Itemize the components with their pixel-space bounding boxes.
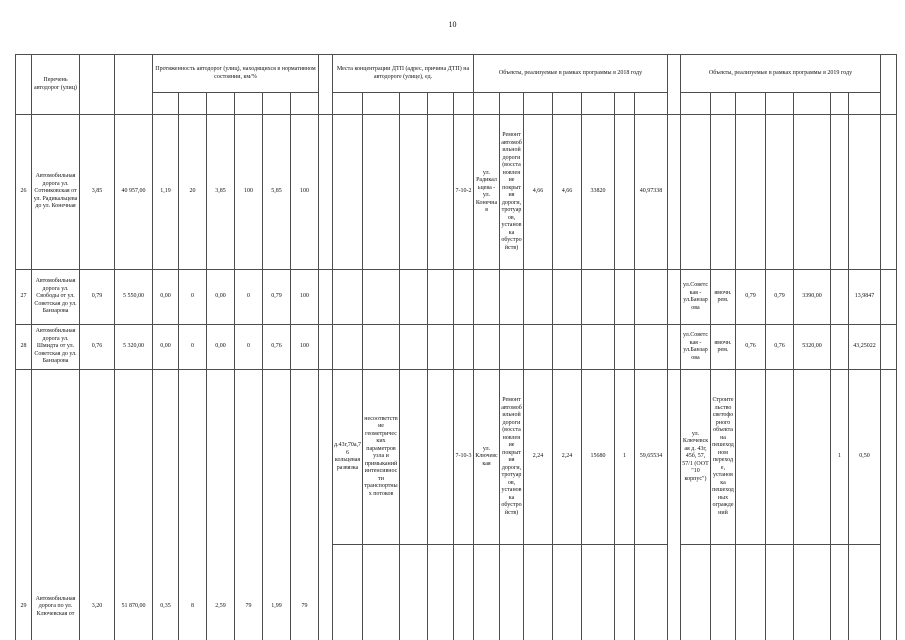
value-2019 xyxy=(794,115,831,270)
normative-value: 0,79 xyxy=(263,270,291,325)
normative-value: 0,00 xyxy=(207,325,235,370)
subheader-cell xyxy=(766,93,794,115)
dtp-empty xyxy=(428,325,454,370)
normative-value: 0 xyxy=(179,325,207,370)
dtp-code xyxy=(454,325,474,370)
value-2019: 0,76 xyxy=(766,325,794,370)
value-2019 xyxy=(831,325,849,370)
dtp-empty xyxy=(400,325,428,370)
normative-value: 1,19 xyxy=(153,115,179,270)
value-2019: 0,76 xyxy=(736,325,766,370)
road-name: Автомобильная дорога ул. Шмидта от ул. С… xyxy=(32,325,80,370)
value-2018: 4,66 xyxy=(553,115,582,270)
spacer-cell xyxy=(668,270,681,325)
row-number: 27 xyxy=(16,270,32,325)
subheader-cell xyxy=(235,93,263,115)
subheader-cell xyxy=(711,93,736,115)
header-cost xyxy=(115,55,153,115)
table-row: 28 Автомобильная дорога ул. Шмидта от ул… xyxy=(16,325,897,370)
subheader-cell xyxy=(454,93,474,115)
subheader-cell xyxy=(831,93,849,115)
value-2019: 1 xyxy=(831,370,849,545)
value-2019 xyxy=(794,545,831,640)
section-2019-address xyxy=(681,115,711,270)
subheader-cell xyxy=(179,93,207,115)
header-spacer-1 xyxy=(319,55,333,115)
section-2018-works: Ремонт автомобильной дороги (восстановле… xyxy=(500,115,524,270)
normative-value: 0,00 xyxy=(207,270,235,325)
dtp-address: д.43г,70а,76 кольцевая развязка xyxy=(333,370,363,545)
normative-value: 0,76 xyxy=(263,325,291,370)
normative-value: 0,00 xyxy=(153,270,179,325)
subheader-cell xyxy=(500,93,524,115)
value-2019: 0,50 xyxy=(849,370,881,545)
value-2018 xyxy=(615,115,635,270)
subheader-cell xyxy=(153,93,179,115)
value-2019: 3390,00 xyxy=(794,270,831,325)
normative-value: 79 xyxy=(235,370,263,640)
section-2018-works xyxy=(500,270,524,325)
dtp-cause xyxy=(363,270,400,325)
last-column-cell xyxy=(881,325,897,370)
document-page: 10 Перечень автодорог (улиц) Протяженнос… xyxy=(0,0,905,640)
subheader-cell xyxy=(363,93,400,115)
spacer-cell xyxy=(668,370,681,640)
section-2019-works xyxy=(711,115,736,270)
normative-value: 100 xyxy=(291,325,319,370)
value-2019 xyxy=(794,370,831,545)
header-normative-group: Протяженность автодорог (улиц), находящи… xyxy=(153,55,319,93)
value-2019 xyxy=(736,370,766,545)
subheader-cell xyxy=(428,93,454,115)
normative-value: 79 xyxy=(291,370,319,640)
section-2019-works: ямочн. рем. xyxy=(711,270,736,325)
dtp-cause xyxy=(363,325,400,370)
value-2019: 13,9847 xyxy=(849,270,881,325)
value-2018 xyxy=(524,270,553,325)
dtp-empty xyxy=(428,370,454,545)
spacer-cell xyxy=(319,115,333,270)
dtp-address xyxy=(333,545,363,640)
subheader-cell xyxy=(400,93,428,115)
header-length xyxy=(80,55,115,115)
value-2018 xyxy=(524,325,553,370)
dtp-empty xyxy=(400,270,428,325)
subheader-cell xyxy=(263,93,291,115)
value-2018 xyxy=(635,545,668,640)
dtp-empty xyxy=(400,545,428,640)
value-2018: 59,65534 xyxy=(635,370,668,545)
dtp-code xyxy=(454,270,474,325)
dtp-code: 7-10-2 xyxy=(454,115,474,270)
header-dtp-group: Места концентрации ДТП (адрес, причина Д… xyxy=(333,55,474,93)
road-name: Автомобильная дорога ул. Сотниковская от… xyxy=(32,115,80,270)
road-length: 3,85 xyxy=(80,115,115,270)
subheader-cell xyxy=(582,93,615,115)
value-2019 xyxy=(736,115,766,270)
section-2018-street xyxy=(474,270,500,325)
value-2018 xyxy=(635,270,668,325)
subheader-cell xyxy=(736,93,766,115)
section-2018-street: ул. Ключевская xyxy=(474,370,500,545)
value-2018 xyxy=(615,270,635,325)
row-number: 28 xyxy=(16,325,32,370)
road-cost: 40 957,00 xyxy=(115,115,153,270)
normative-value: 1,99 xyxy=(263,370,291,640)
value-2018 xyxy=(615,545,635,640)
section-2019-address xyxy=(681,545,711,640)
section-2018-works: Ремонт автомобильной дороги (восстановле… xyxy=(500,370,524,545)
value-2019 xyxy=(831,270,849,325)
section-2019-address: ул. Ключевская д. 43г, 45б, 57, 57/1 (ОО… xyxy=(681,370,711,545)
header-2018-group: Объекты, реализуемые в рамках программы … xyxy=(474,55,668,93)
value-2018: 40,97338 xyxy=(635,115,668,270)
dtp-empty xyxy=(400,115,428,270)
value-2019 xyxy=(831,115,849,270)
section-2018-street xyxy=(474,325,500,370)
normative-value: 8 xyxy=(179,370,207,640)
value-2018: 15680 xyxy=(582,370,615,545)
table-row: 27 Автомобильная дорога ул. Свободы от у… xyxy=(16,270,897,325)
spacer-cell xyxy=(319,270,333,325)
header-road-list: Перечень автодорог (улиц) xyxy=(32,55,80,115)
road-name: Автомобильная дорога ул. Свободы от ул. … xyxy=(32,270,80,325)
road-name: Автомобильная дорога по ул. Ключевская о… xyxy=(32,370,80,640)
value-2019: 0,79 xyxy=(766,270,794,325)
table-row: 26 Автомобильная дорога ул. Сотниковская… xyxy=(16,115,897,270)
subheader-cell xyxy=(333,93,363,115)
normative-value: 3,85 xyxy=(207,115,235,270)
spacer-cell xyxy=(319,370,333,640)
roads-program-table: Перечень автодорог (улиц) Протяженность … xyxy=(15,54,897,640)
subheader-cell xyxy=(207,93,235,115)
normative-value: 5,85 xyxy=(263,115,291,270)
dtp-empty xyxy=(400,370,428,545)
section-2018-works xyxy=(500,325,524,370)
section-2018-street: ул. Радикальцева - ул. Конечная xyxy=(474,115,500,270)
subheader-cell xyxy=(474,93,500,115)
dtp-address xyxy=(333,270,363,325)
subheader-cell xyxy=(681,93,711,115)
value-2018: 33820 xyxy=(582,115,615,270)
value-2018 xyxy=(635,325,668,370)
value-2019: 43,25022 xyxy=(849,325,881,370)
subheader-cell xyxy=(553,93,582,115)
value-2018 xyxy=(582,270,615,325)
normative-value: 0,00 xyxy=(153,325,179,370)
road-length: 0,76 xyxy=(80,325,115,370)
road-length: 3,20 xyxy=(80,370,115,640)
value-2018 xyxy=(582,545,615,640)
spacer-cell xyxy=(668,325,681,370)
dtp-cause: несоответствие геометрических параметров… xyxy=(363,370,400,545)
value-2018 xyxy=(553,545,582,640)
normative-value: 0 xyxy=(235,325,263,370)
value-2018 xyxy=(615,325,635,370)
normative-value: 100 xyxy=(291,115,319,270)
value-2018 xyxy=(524,545,553,640)
dtp-code xyxy=(454,545,474,640)
header-cell-index xyxy=(16,55,32,115)
subheader-cell xyxy=(635,93,668,115)
subheader-cell xyxy=(524,93,553,115)
value-2019: 0,79 xyxy=(736,270,766,325)
normative-value: 100 xyxy=(291,270,319,325)
value-2019 xyxy=(831,545,849,640)
value-2018: 1 xyxy=(615,370,635,545)
value-2018 xyxy=(582,325,615,370)
dtp-cause xyxy=(363,115,400,270)
road-cost: 5 550,00 xyxy=(115,270,153,325)
row-number: 29 xyxy=(16,370,32,640)
value-2019 xyxy=(766,545,794,640)
value-2018 xyxy=(553,325,582,370)
dtp-empty xyxy=(428,115,454,270)
road-cost: 5 320,00 xyxy=(115,325,153,370)
road-cost: 51 870,00 xyxy=(115,370,153,640)
dtp-cause xyxy=(363,545,400,640)
header-spacer-2 xyxy=(668,55,681,115)
section-2019-address: ул.Советская - ул.Банзарова xyxy=(681,325,711,370)
subheader-cell xyxy=(615,93,635,115)
spacer-cell xyxy=(668,115,681,270)
spacer-cell xyxy=(319,325,333,370)
value-2018: 2,24 xyxy=(524,370,553,545)
normative-value: 20 xyxy=(179,115,207,270)
last-column-cell xyxy=(881,370,897,640)
page-number: 10 xyxy=(0,0,905,34)
section-2019-works: ямочн. рем. xyxy=(711,325,736,370)
table-row: 29 Автомобильная дорога по ул. Ключевска… xyxy=(16,370,897,545)
section-2019-works: Строительство светофорного объекта на пе… xyxy=(711,370,736,545)
dtp-address xyxy=(333,115,363,270)
row-number: 26 xyxy=(16,115,32,270)
header-row-groups: Перечень автодорог (улиц) Протяженность … xyxy=(16,55,897,93)
dtp-address xyxy=(333,325,363,370)
dtp-empty xyxy=(428,545,454,640)
section-2019-works xyxy=(711,545,736,640)
header-2019-group: Объекты, реализуемые в рамках программы … xyxy=(681,55,881,93)
dtp-empty xyxy=(428,270,454,325)
value-2018: 4,66 xyxy=(524,115,553,270)
value-2019: 5320,00 xyxy=(794,325,831,370)
last-column-cell xyxy=(881,270,897,325)
section-2018-street xyxy=(474,545,500,640)
last-column-cell xyxy=(881,115,897,270)
header-last-column xyxy=(881,55,897,115)
value-2019 xyxy=(766,115,794,270)
dtp-code: 7-10-3 xyxy=(454,370,474,545)
normative-value: 0,35 xyxy=(153,370,179,640)
normative-value: 100 xyxy=(235,115,263,270)
value-2019 xyxy=(766,370,794,545)
subheader-cell xyxy=(291,93,319,115)
value-2018: 2,24 xyxy=(553,370,582,545)
normative-value: 0 xyxy=(235,270,263,325)
normative-value: 0 xyxy=(179,270,207,325)
normative-value: 2,59 xyxy=(207,370,235,640)
value-2019 xyxy=(849,545,881,640)
subheader-cell xyxy=(849,93,881,115)
value-2019 xyxy=(849,115,881,270)
section-2018-works xyxy=(500,545,524,640)
section-2019-address: ул.Советская - ул.Банзарова xyxy=(681,270,711,325)
subheader-cell xyxy=(794,93,831,115)
value-2018 xyxy=(553,270,582,325)
road-length: 0,79 xyxy=(80,270,115,325)
value-2019 xyxy=(736,545,766,640)
